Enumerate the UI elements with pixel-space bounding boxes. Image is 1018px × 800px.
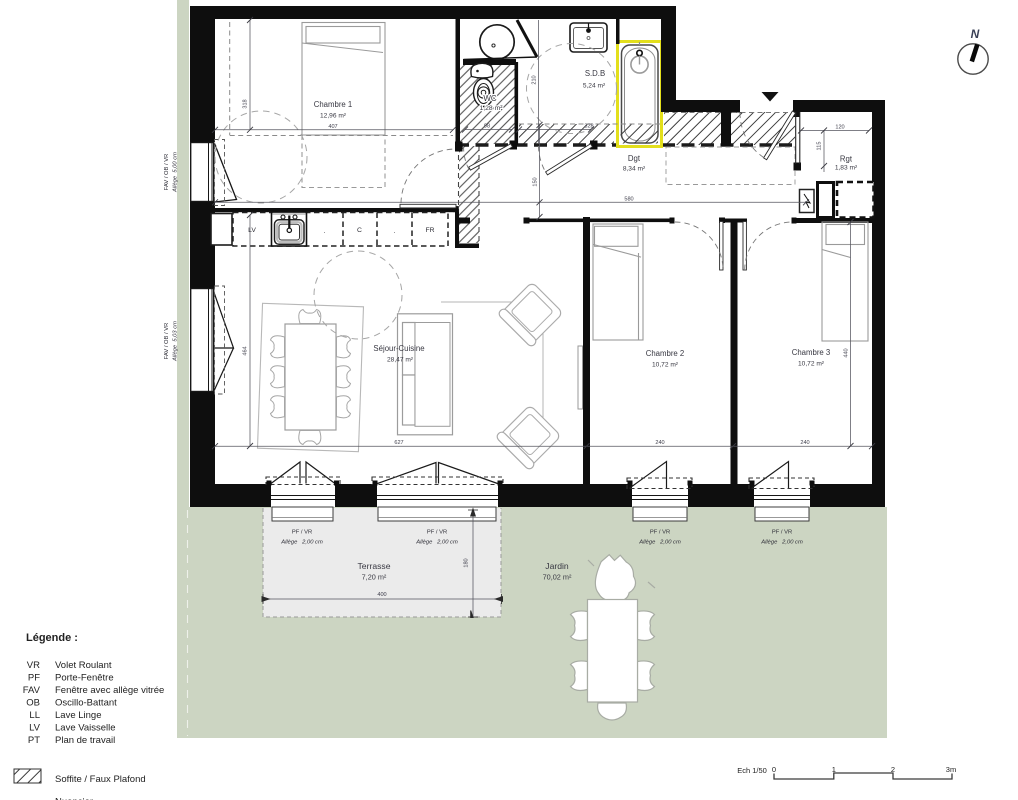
svg-text:70,02 m²: 70,02 m² bbox=[543, 573, 572, 582]
svg-text:PF / VR: PF / VR bbox=[292, 530, 312, 536]
svg-text:Allège 2,00 cm: Allège 2,00 cm bbox=[280, 540, 323, 546]
svg-text:0: 0 bbox=[772, 765, 776, 774]
svg-text:7,20 m²: 7,20 m² bbox=[362, 573, 387, 582]
svg-text:1,83 m²: 1,83 m² bbox=[835, 165, 858, 172]
svg-text:.: . bbox=[394, 228, 396, 235]
svg-text:10,72 m²: 10,72 m² bbox=[652, 362, 679, 369]
svg-text:Lave Linge: Lave Linge bbox=[55, 710, 101, 721]
svg-text:150: 150 bbox=[533, 177, 539, 186]
svg-text:PF: PF bbox=[28, 673, 40, 684]
svg-text:VR: VR bbox=[27, 660, 40, 671]
svg-text:10,72 m²: 10,72 m² bbox=[798, 361, 825, 368]
svg-text:PF / VR: PF / VR bbox=[772, 530, 792, 536]
svg-text:Allège 5,03 cm: Allège 5,03 cm bbox=[173, 321, 179, 362]
svg-text:Chambre 2: Chambre 2 bbox=[646, 349, 685, 358]
svg-text:WC: WC bbox=[483, 94, 497, 103]
svg-text:FAV: FAV bbox=[23, 685, 41, 696]
svg-text:3m: 3m bbox=[946, 765, 956, 774]
svg-text:S.D.B: S.D.B bbox=[585, 69, 605, 78]
svg-text:LV: LV bbox=[29, 723, 41, 734]
svg-text:Légende :: Légende : bbox=[26, 632, 78, 644]
svg-text:Plan de travail: Plan de travail bbox=[55, 735, 115, 746]
svg-text:.: . bbox=[324, 228, 326, 235]
svg-text:Rgt: Rgt bbox=[840, 155, 853, 164]
svg-text:N: N bbox=[971, 27, 980, 41]
svg-text:12,96 m²: 12,96 m² bbox=[320, 113, 347, 120]
svg-text:210: 210 bbox=[532, 75, 538, 84]
svg-text:Jardin: Jardin bbox=[545, 561, 569, 571]
svg-text:PF / VR: PF / VR bbox=[650, 530, 670, 536]
svg-text:Oscillo-Battant: Oscillo-Battant bbox=[55, 698, 117, 709]
svg-text:Allège 2,00 cm: Allège 2,00 cm bbox=[415, 540, 458, 546]
svg-text:Allège 2,00 cm: Allège 2,00 cm bbox=[760, 540, 803, 546]
svg-text:Nuancier: Nuancier bbox=[55, 797, 93, 800]
svg-text:627: 627 bbox=[394, 440, 403, 446]
svg-text:Ech 1/50: Ech 1/50 bbox=[737, 766, 767, 775]
svg-text:PF / VR: PF / VR bbox=[427, 530, 447, 536]
svg-text:400: 400 bbox=[377, 592, 386, 598]
svg-text:28,47 m²: 28,47 m² bbox=[387, 357, 414, 364]
svg-text:180: 180 bbox=[464, 558, 470, 567]
svg-text:FAV / OB / VR: FAV / OB / VR bbox=[164, 323, 170, 360]
svg-text:C: C bbox=[357, 227, 362, 234]
svg-text:8,34 m²: 8,34 m² bbox=[623, 166, 646, 173]
svg-text:440: 440 bbox=[844, 348, 850, 357]
svg-text:Chambre 1: Chambre 1 bbox=[314, 100, 353, 109]
svg-text:115: 115 bbox=[817, 142, 823, 151]
svg-text:Chambre 3: Chambre 3 bbox=[792, 348, 831, 357]
svg-text:Séjour-Cuisine: Séjour-Cuisine bbox=[373, 344, 424, 353]
svg-text:240: 240 bbox=[655, 440, 664, 446]
svg-text:328: 328 bbox=[584, 124, 593, 130]
svg-text:240: 240 bbox=[800, 440, 809, 446]
svg-text:120: 120 bbox=[835, 125, 844, 131]
svg-text:Porte-Fenêtre: Porte-Fenêtre bbox=[55, 673, 114, 684]
svg-text:Volet Roulant: Volet Roulant bbox=[55, 660, 112, 671]
svg-text:FR: FR bbox=[425, 227, 434, 234]
svg-text:580: 580 bbox=[624, 196, 633, 202]
svg-text:Soffite / Faux Plafond: Soffite / Faux Plafond bbox=[55, 774, 146, 785]
svg-text:Dgt: Dgt bbox=[628, 154, 641, 163]
svg-text:Allège 2,00 cm: Allège 2,00 cm bbox=[638, 540, 681, 546]
svg-text:Fenêtre avec allège vitrée: Fenêtre avec allège vitrée bbox=[55, 685, 164, 696]
svg-text:PT: PT bbox=[28, 735, 40, 746]
svg-text:98: 98 bbox=[484, 124, 490, 130]
svg-text:Allège 5,00 cm: Allège 5,00 cm bbox=[173, 152, 179, 193]
svg-text:LL: LL bbox=[29, 710, 40, 721]
svg-text:407: 407 bbox=[328, 124, 337, 130]
svg-text:464: 464 bbox=[243, 346, 249, 355]
svg-text:Terrasse: Terrasse bbox=[358, 561, 391, 571]
svg-text:1,28 m²: 1,28 m² bbox=[479, 105, 503, 112]
svg-text:LV: LV bbox=[248, 227, 256, 234]
svg-text:5,24 m²: 5,24 m² bbox=[583, 83, 606, 90]
svg-text:318: 318 bbox=[243, 99, 249, 108]
svg-text:FAV / OB / VR: FAV / OB / VR bbox=[164, 154, 170, 191]
svg-text:Lave Vaisselle: Lave Vaisselle bbox=[55, 723, 116, 734]
svg-text:OB: OB bbox=[26, 698, 40, 709]
